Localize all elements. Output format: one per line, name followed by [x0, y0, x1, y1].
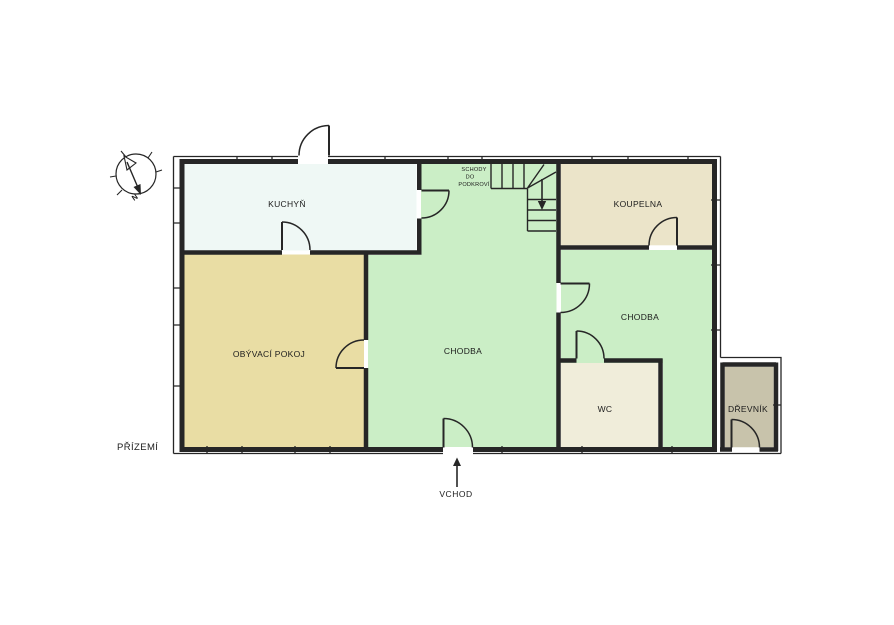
- label-hall-main: CHODBA: [444, 346, 482, 356]
- stairs-note-line1: SCHODY: [461, 167, 486, 173]
- label-hall-back: CHODBA: [621, 312, 659, 322]
- label-bathroom: KOUPELNA: [614, 199, 663, 209]
- floor-plan-canvas: SCHODY DO PODKROVÍ N KUCHYŇ OBÝVACÍ POKO…: [0, 0, 894, 625]
- kitchen-exterior-door: [299, 126, 329, 156]
- floor-plan-page: SCHODY DO PODKROVÍ N KUCHYŇ OBÝVACÍ POKO…: [0, 0, 894, 625]
- label-living-room: OBÝVACÍ POKOJ: [233, 349, 305, 359]
- entrance-label: VCHOD: [439, 489, 472, 499]
- label-kitchen: KUCHYŇ: [268, 199, 306, 209]
- stairs-note-line2: DO: [466, 175, 475, 181]
- stairs-note-line3: PODKROVÍ: [458, 181, 489, 188]
- floor-label: PŘÍZEMÍ: [117, 442, 158, 453]
- label-wc: WC: [598, 404, 613, 414]
- compass-icon: N: [110, 151, 162, 203]
- entrance-arrow: [453, 458, 461, 488]
- label-woodshed: DŘEVNÍK: [728, 404, 768, 414]
